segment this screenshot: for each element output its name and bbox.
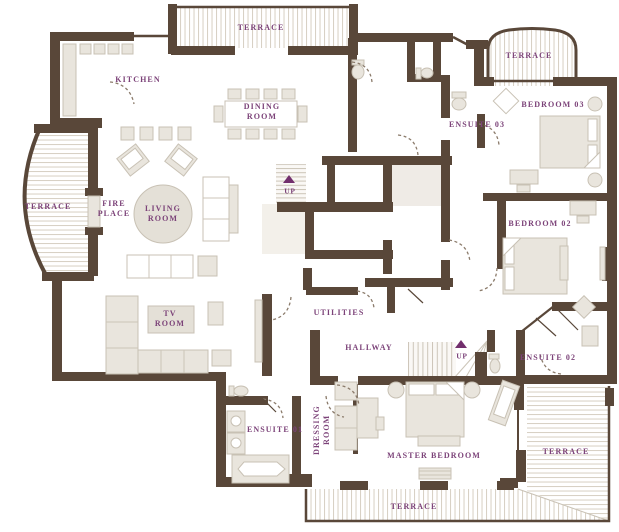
label-tv-room: TV ROOM: [155, 309, 185, 329]
label-terrace-left: TERRACE: [25, 202, 72, 212]
label-terrace-right: TERRACE: [543, 447, 590, 457]
label-ensuite-03: ENSUITE 03: [449, 120, 505, 130]
stair-main: [276, 164, 306, 204]
label-terrace-top-right: TERRACE: [506, 51, 553, 61]
label-fire-place: FIRE PLACE: [98, 199, 131, 219]
label-living-room: LIVING ROOM: [145, 204, 181, 224]
label-dining-room: DINING ROOM: [244, 102, 280, 122]
label-utilities: UTILITIES: [314, 308, 365, 318]
label-hallway: HALLWAY: [345, 343, 393, 353]
master-bedroom-furniture: [357, 380, 520, 479]
floor-plan-drawing: [0, 0, 619, 532]
floor-plan: TERRACE TERRACE TERRACE TERRACE TERRACE …: [0, 0, 619, 532]
label-terrace-top: TERRACE: [238, 23, 285, 33]
label-up-stair-1: UP: [284, 186, 296, 195]
label-kitchen: KITCHEN: [115, 75, 161, 85]
label-ensuite-01: ENSUITE 01: [247, 425, 303, 435]
label-dressing-room: DRESSING ROOM: [312, 405, 332, 455]
label-terrace-bottom: TERRACE: [391, 502, 438, 512]
label-master-bedroom: MASTER BEDROOM: [387, 451, 481, 461]
label-ensuite-02: ENSUITE 02: [520, 353, 576, 363]
lift-shaft: [392, 165, 441, 206]
tv-room-furniture: [106, 296, 262, 374]
label-up-stair-2: UP: [456, 351, 468, 360]
bedroom-02-furniture: [503, 201, 605, 294]
label-bedroom-03: BEDROOM 03: [521, 100, 584, 110]
label-bedroom-02: BEDROOM 02: [508, 219, 571, 229]
